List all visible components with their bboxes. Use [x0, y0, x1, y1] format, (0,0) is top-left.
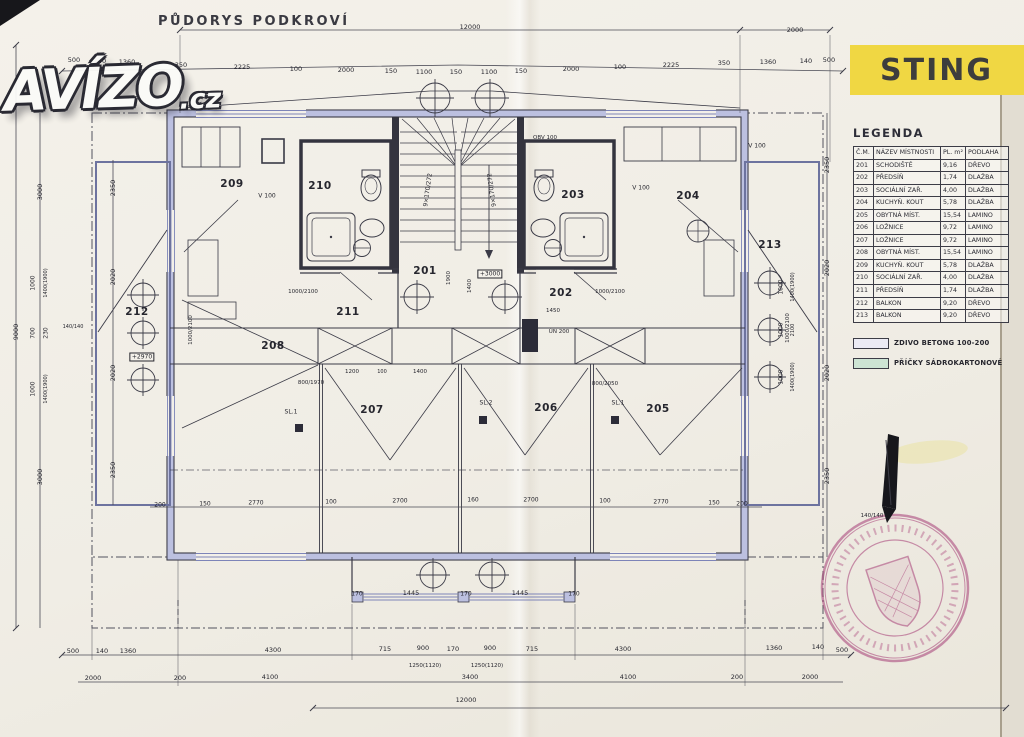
legend-header-cell: PL. m²	[941, 147, 966, 160]
legend-row: 207LOŽNICE9,72LAMINO	[854, 234, 1009, 247]
legend-header-cell: PODLAHA	[965, 147, 1008, 160]
legend-row: 203SOCIÁLNÍ ZAŘ.4,00DLAŽBA	[854, 184, 1009, 197]
sting-badge-label: STING	[880, 53, 993, 88]
legend-row: 204KUCHYŇ. KOUT5,78DLAŽBA	[854, 197, 1009, 210]
material-row-drywall: PŘÍČKY SÁDROKARTONOVÉ	[853, 358, 1015, 369]
drywall-label: PŘÍČKY SÁDROKARTONOVÉ	[894, 359, 1002, 367]
avizo-watermark: AVÍZO.cz	[3, 52, 224, 125]
legend-row: 208OBYTNÁ MÍST.15,54LAMINO	[854, 247, 1009, 260]
legend-row: 209KUCHYŇ. KOUT5,78DLAŽBA	[854, 259, 1009, 272]
legend-row: 212BALKON9,20DŘEVO	[854, 297, 1009, 310]
drywall-swatch	[853, 358, 889, 369]
legend-row: 201SCHODIŠTĚ9,16DŘEVO	[854, 159, 1009, 172]
legend-panel: LEGENDA Č.M.NÁZEV MÍSTNOSTIPL. m²PODLAHA…	[853, 126, 1015, 378]
avizo-brand: AVÍZO	[3, 54, 182, 125]
legend-row: 210SOCIÁLNÍ ZAŘ.4,00DLAŽBA	[854, 272, 1009, 285]
material-legend: ZDIVO BETONG 100-200 PŘÍČKY SÁDROKARTONO…	[853, 338, 1015, 369]
avizo-tld: .cz	[179, 83, 222, 115]
legend-title: LEGENDA	[853, 126, 1015, 140]
legend-row: 205OBYTNÁ MÍST.15,54LAMINO	[854, 209, 1009, 222]
legend-header-cell: Č.M.	[854, 147, 874, 160]
legend-row: 206LOŽNICE9,72LAMINO	[854, 222, 1009, 235]
legend-table-body: 201SCHODIŠTĚ9,16DŘEVO202PŘEDSÍŇ1,74DLAŽB…	[854, 159, 1009, 322]
masonry-swatch	[853, 338, 889, 349]
legend-row: 211PŘEDSÍŇ1,74DLAŽBA	[854, 285, 1009, 298]
legend-row: 213BALKON9,20DŘEVO	[854, 310, 1009, 323]
scanned-floor-plan-page: 2092102032042012022112122132082072062051…	[0, 0, 1024, 737]
sting-badge: STING	[850, 45, 1024, 95]
legend-table: Č.M.NÁZEV MÍSTNOSTIPL. m²PODLAHA 201SCHO…	[853, 146, 1009, 323]
legend-header-cell: NÁZEV MÍSTNOSTI	[874, 147, 941, 160]
legend-header-row: Č.M.NÁZEV MÍSTNOSTIPL. m²PODLAHA	[854, 147, 1009, 160]
material-row-masonry: ZDIVO BETONG 100-200	[853, 338, 1015, 349]
masonry-label: ZDIVO BETONG 100-200	[894, 339, 989, 347]
legend-row: 202PŘEDSÍŇ1,74DLAŽBA	[854, 172, 1009, 185]
